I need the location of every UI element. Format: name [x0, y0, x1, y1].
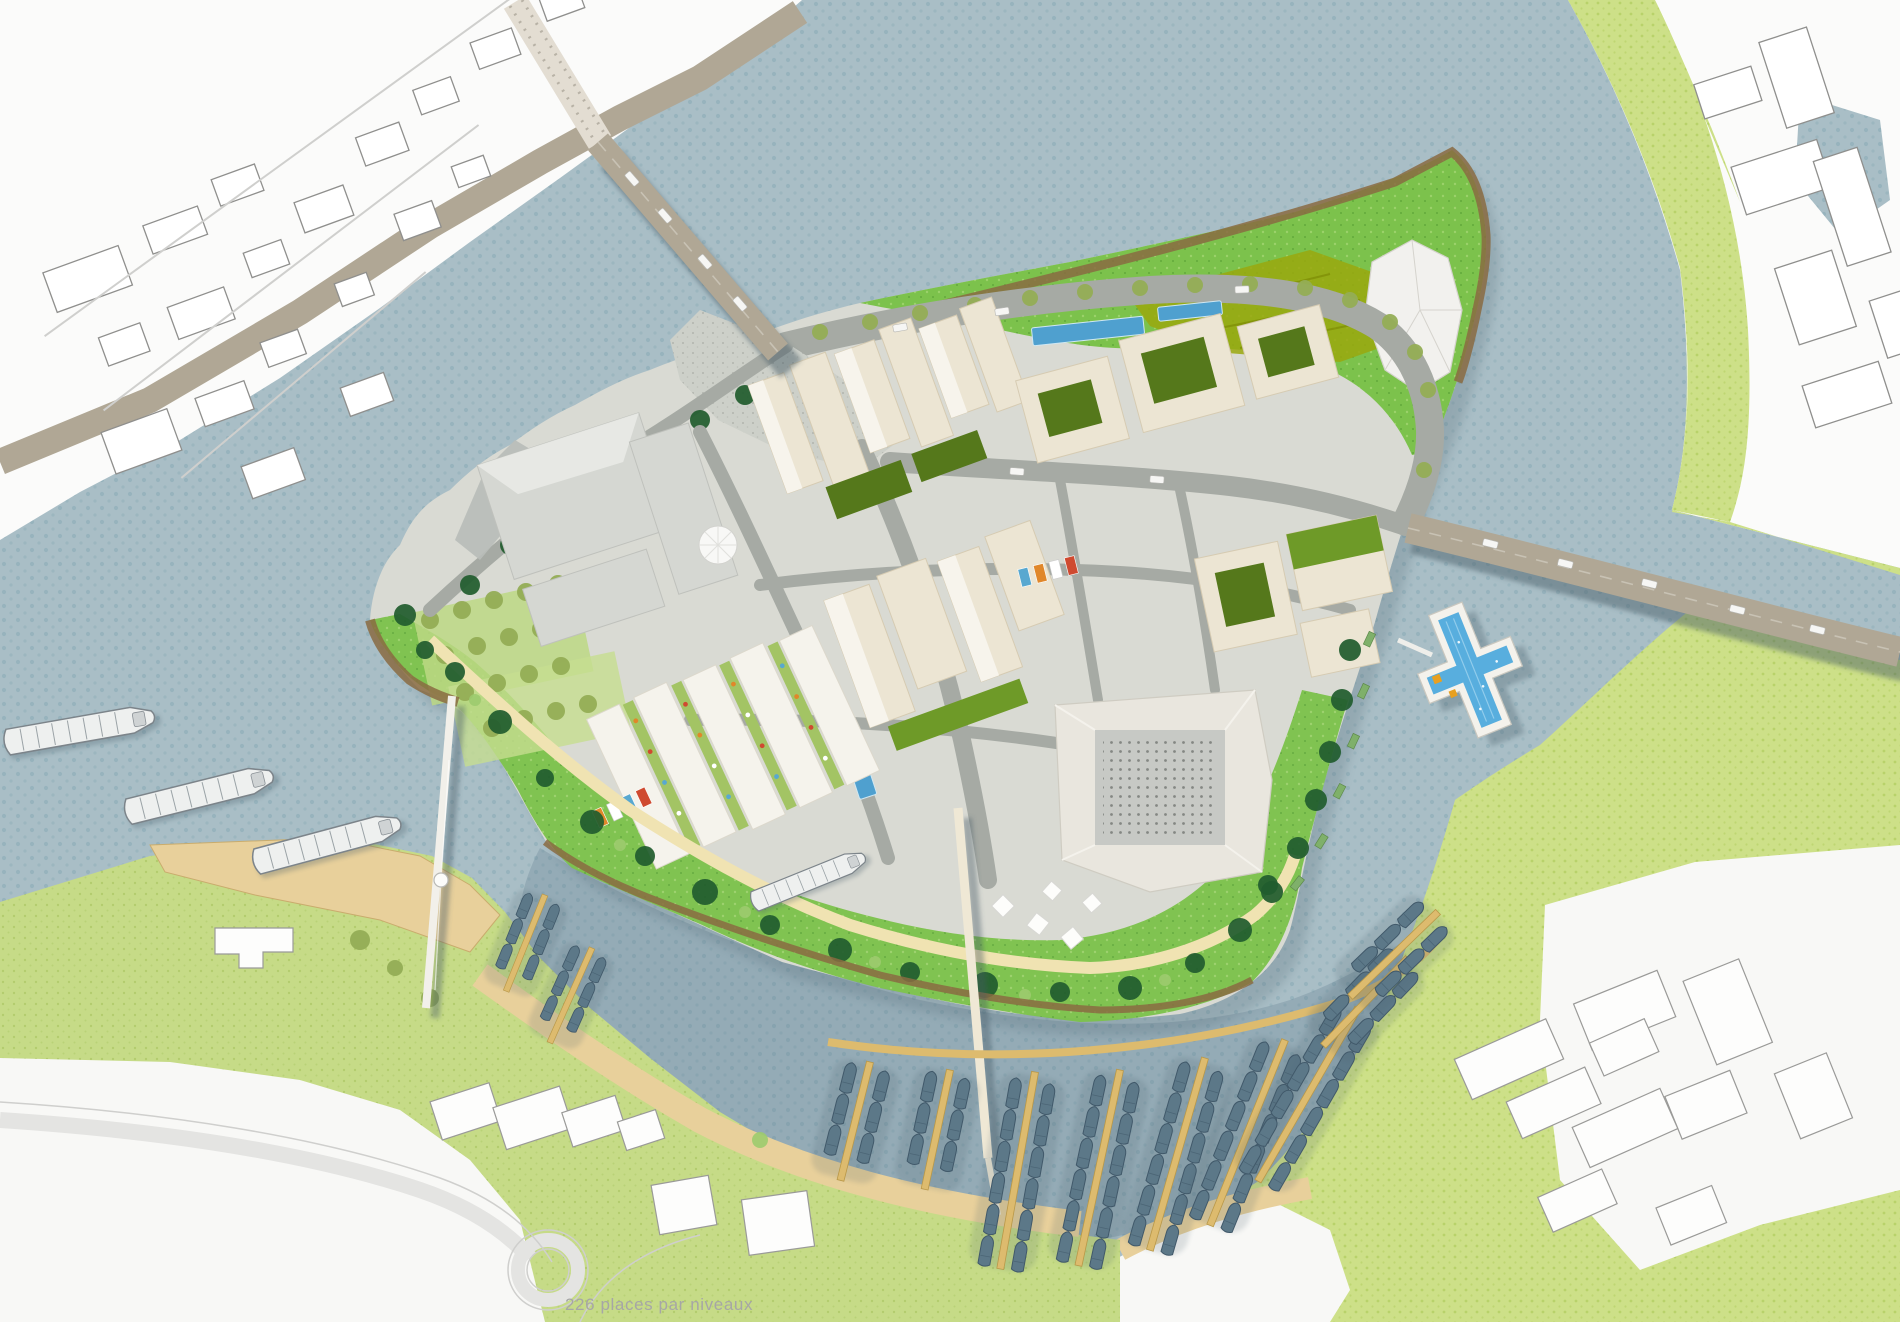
masterplan-page: 226 places par niveaux [0, 0, 1900, 1322]
masterplan-map: 226 places par niveaux [0, 0, 1900, 1322]
caption: 226 places par niveaux [565, 1295, 753, 1314]
bridge-pylon [434, 873, 448, 887]
hall-building [1055, 690, 1272, 892]
